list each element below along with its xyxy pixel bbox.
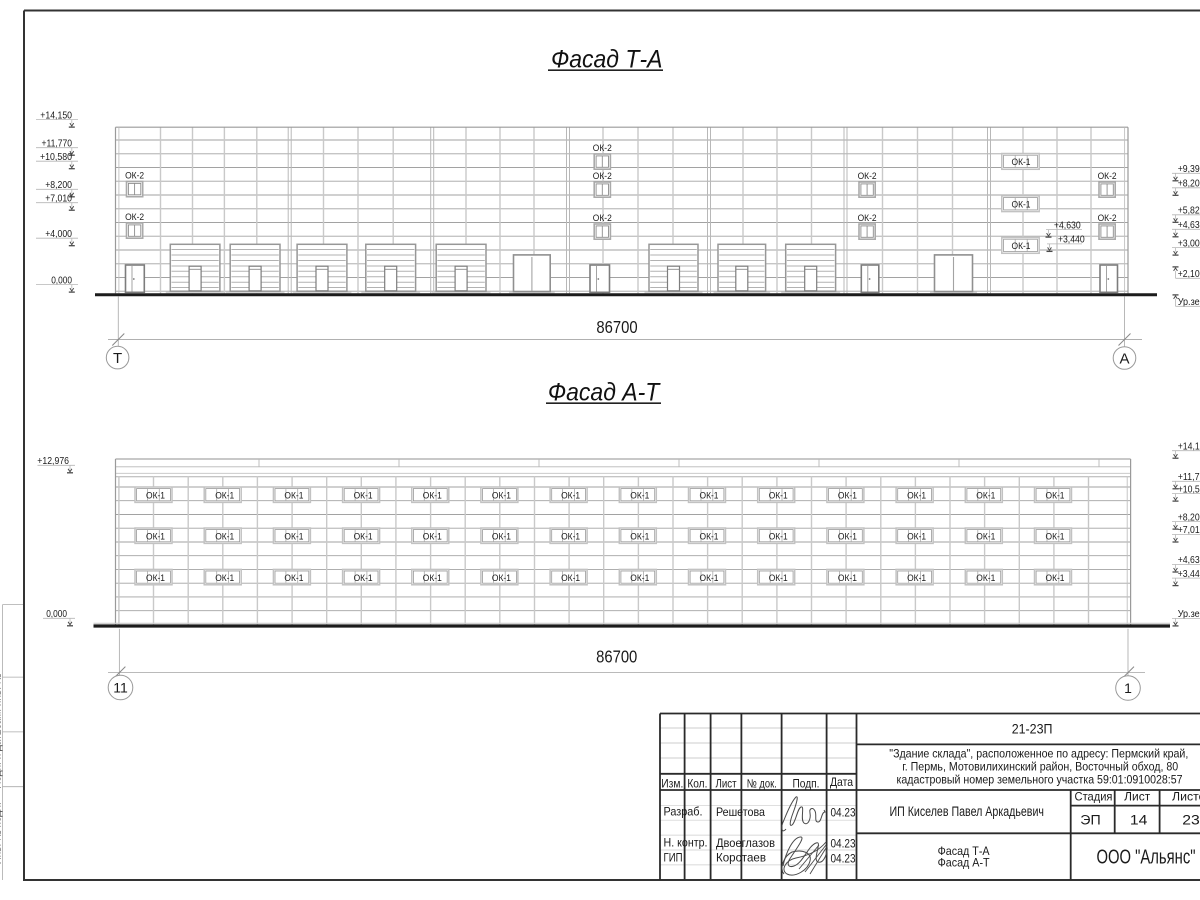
svg-text:ОК-1: ОК-1 xyxy=(976,573,995,583)
svg-text:ОК-1: ОК-1 xyxy=(146,573,165,583)
svg-text:ООО "Альянс": ООО "Альянс" xyxy=(1097,847,1196,869)
svg-text:ОК-1: ОК-1 xyxy=(284,532,303,542)
svg-text:ОК-1: ОК-1 xyxy=(1046,491,1065,501)
svg-text:Дата: Дата xyxy=(830,775,853,789)
svg-text:Т: Т xyxy=(113,350,122,367)
svg-text:04.23: 04.23 xyxy=(831,837,856,851)
svg-text:ОК-1: ОК-1 xyxy=(492,573,511,583)
svg-text:ОК-1: ОК-1 xyxy=(838,532,857,542)
svg-text:ОК-1: ОК-1 xyxy=(1012,157,1031,167)
svg-text:ОК-1: ОК-1 xyxy=(215,532,234,542)
svg-text:ОК-1: ОК-1 xyxy=(1046,532,1065,542)
svg-text:Подп. и дата: Подп. и дата xyxy=(0,729,4,788)
svg-text:86700: 86700 xyxy=(596,647,637,667)
svg-text:Взам. инв. №: Взам. инв. № xyxy=(0,673,4,735)
svg-text:"Здание склада", расположенное: "Здание склада", расположенное по адресу… xyxy=(889,746,1188,760)
svg-text:ОК-1: ОК-1 xyxy=(284,491,303,501)
svg-text:Фасад А-Т: Фасад А-Т xyxy=(938,856,991,870)
svg-text:ОК-1: ОК-1 xyxy=(284,573,303,583)
svg-text:ОК-1: ОК-1 xyxy=(769,532,788,542)
svg-text:Коротаев: Коротаев xyxy=(716,851,766,865)
svg-text:ОК-1: ОК-1 xyxy=(423,532,442,542)
svg-text:Подп.: Подп. xyxy=(793,777,820,791)
svg-text:Двоеглазов: Двоеглазов xyxy=(716,836,775,850)
svg-text:ОК-1: ОК-1 xyxy=(354,491,373,501)
svg-text:ОК-2: ОК-2 xyxy=(1098,171,1117,181)
svg-text:Инв. № подл.: Инв. № подл. xyxy=(0,802,4,864)
svg-text:Н. контр.: Н. контр. xyxy=(664,836,708,850)
svg-text:21-23П: 21-23П xyxy=(1012,722,1053,737)
svg-text:Фасад А-Т: Фасад А-Т xyxy=(548,379,661,406)
svg-text:ОК-1: ОК-1 xyxy=(1012,199,1031,209)
svg-text:Изм.: Изм. xyxy=(661,777,683,791)
svg-text:ОК-1: ОК-1 xyxy=(700,573,719,583)
svg-text:ОК-1: ОК-1 xyxy=(976,532,995,542)
svg-text:ОК-1: ОК-1 xyxy=(838,491,857,501)
svg-text:ОК-2: ОК-2 xyxy=(593,143,612,153)
svg-text:ОК-2: ОК-2 xyxy=(125,212,144,222)
svg-text:ОК-1: ОК-1 xyxy=(1046,573,1065,583)
svg-text:ОК-2: ОК-2 xyxy=(858,171,877,181)
svg-text:№ док.: № док. xyxy=(747,777,777,791)
svg-text:ЭП: ЭП xyxy=(1080,813,1100,829)
svg-text:ОК-2: ОК-2 xyxy=(858,213,877,223)
svg-text:ОК-1: ОК-1 xyxy=(492,491,511,501)
svg-text:ГИП: ГИП xyxy=(664,851,683,865)
svg-text:ОК-1: ОК-1 xyxy=(907,532,926,542)
svg-text:86700: 86700 xyxy=(596,317,637,337)
svg-text:ОК-2: ОК-2 xyxy=(125,171,144,181)
svg-text:Решетова: Решетова xyxy=(716,805,765,819)
svg-text:ОК-1: ОК-1 xyxy=(561,573,580,583)
svg-text:ОК-1: ОК-1 xyxy=(354,573,373,583)
svg-text:ОК-1: ОК-1 xyxy=(907,573,926,583)
svg-text:Разраб.: Разраб. xyxy=(664,805,703,819)
svg-text:1: 1 xyxy=(1124,680,1132,696)
svg-text:Лист: Лист xyxy=(1124,790,1151,804)
svg-text:ОК-1: ОК-1 xyxy=(492,532,511,542)
svg-text:ОК-1: ОК-1 xyxy=(146,532,165,542)
svg-text:ОК-1: ОК-1 xyxy=(561,491,580,501)
svg-text:ОК-1: ОК-1 xyxy=(354,532,373,542)
svg-text:ОК-1: ОК-1 xyxy=(700,491,719,501)
svg-text:Кол.: Кол. xyxy=(687,777,707,791)
svg-text:ОК-1: ОК-1 xyxy=(630,532,649,542)
svg-text:ОК-1: ОК-1 xyxy=(561,532,580,542)
svg-text:ОК-1: ОК-1 xyxy=(215,491,234,501)
svg-text:Стадия: Стадия xyxy=(1075,790,1113,804)
svg-text:14: 14 xyxy=(1130,813,1148,829)
svg-text:кадастровый номер земельного у: кадастровый номер земельного участка 59:… xyxy=(897,773,1183,787)
svg-text:г. Пермь, Мотовилихинский райо: г. Пермь, Мотовилихинский район, Восточн… xyxy=(902,760,1178,774)
svg-text:ОК-1: ОК-1 xyxy=(769,573,788,583)
svg-text:04.23: 04.23 xyxy=(831,806,856,820)
svg-text:ОК-1: ОК-1 xyxy=(630,491,649,501)
svg-text:ОК-1: ОК-1 xyxy=(1012,241,1031,251)
svg-text:11: 11 xyxy=(113,680,128,696)
svg-text:23: 23 xyxy=(1182,813,1200,829)
svg-text:ОК-2: ОК-2 xyxy=(1098,213,1117,223)
svg-text:Листов: Листов xyxy=(1172,790,1200,804)
svg-text:ОК-1: ОК-1 xyxy=(769,491,788,501)
svg-text:ОК-1: ОК-1 xyxy=(146,491,165,501)
svg-text:ОК-2: ОК-2 xyxy=(593,171,612,181)
svg-text:ОК-1: ОК-1 xyxy=(423,573,442,583)
svg-text:ОК-2: ОК-2 xyxy=(593,213,612,223)
svg-text:04.23: 04.23 xyxy=(831,852,856,866)
svg-text:ОК-1: ОК-1 xyxy=(907,491,926,501)
svg-text:ОК-1: ОК-1 xyxy=(976,491,995,501)
svg-text:А: А xyxy=(1119,350,1129,367)
svg-text:ОК-1: ОК-1 xyxy=(215,573,234,583)
svg-text:ИП Киселев Павел Аркадьевич: ИП Киселев Павел Аркадьевич xyxy=(889,804,1044,820)
svg-text:ОК-1: ОК-1 xyxy=(838,573,857,583)
svg-text:ОК-1: ОК-1 xyxy=(423,491,442,501)
svg-text:Лист: Лист xyxy=(716,777,737,791)
svg-text:ОК-1: ОК-1 xyxy=(700,532,719,542)
svg-text:ОК-1: ОК-1 xyxy=(630,573,649,583)
